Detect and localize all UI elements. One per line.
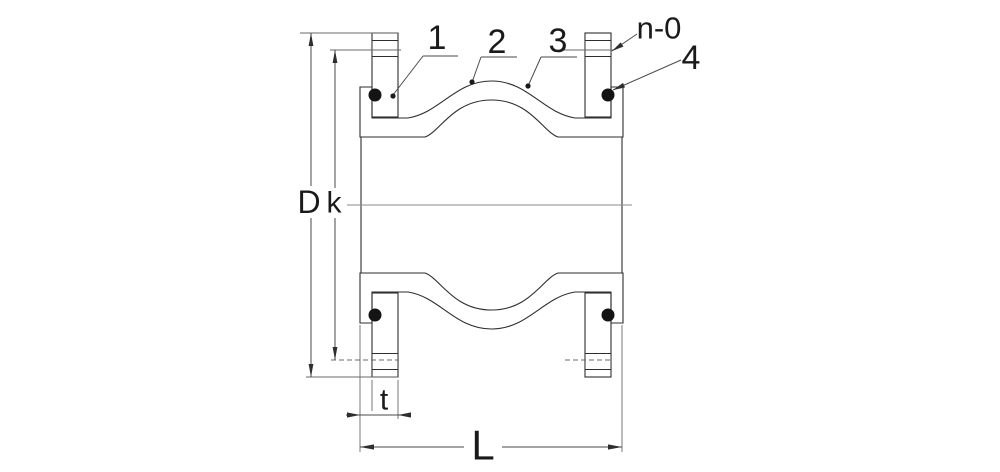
rubber-bead-bottom-left xyxy=(369,309,382,322)
expansion-joint-drawing: 1 2 3 n-0 4 D k t L xyxy=(0,0,1000,472)
bolt-hole-band xyxy=(586,41,611,57)
bolt-holes-label: n-0 xyxy=(637,11,682,46)
canvas-background xyxy=(0,0,1000,472)
callout-4-label: 4 xyxy=(682,39,701,77)
callout-2-label: 2 xyxy=(488,23,507,61)
callout-1-label: 1 xyxy=(428,19,447,57)
dim-L-label: L xyxy=(471,422,494,469)
bolt-hole-band xyxy=(373,354,398,370)
rubber-bead-top-right xyxy=(602,89,615,102)
callout-3-label: 3 xyxy=(549,22,568,60)
rubber-bead-top-left xyxy=(369,89,382,102)
dim-D-label: D xyxy=(297,184,320,220)
bolt-hole-band xyxy=(586,354,611,370)
dim-t-label: t xyxy=(380,384,389,417)
dim-k-label: k xyxy=(327,187,343,220)
rubber-bead-bottom-right xyxy=(602,309,615,322)
bolt-hole-band xyxy=(373,41,398,57)
